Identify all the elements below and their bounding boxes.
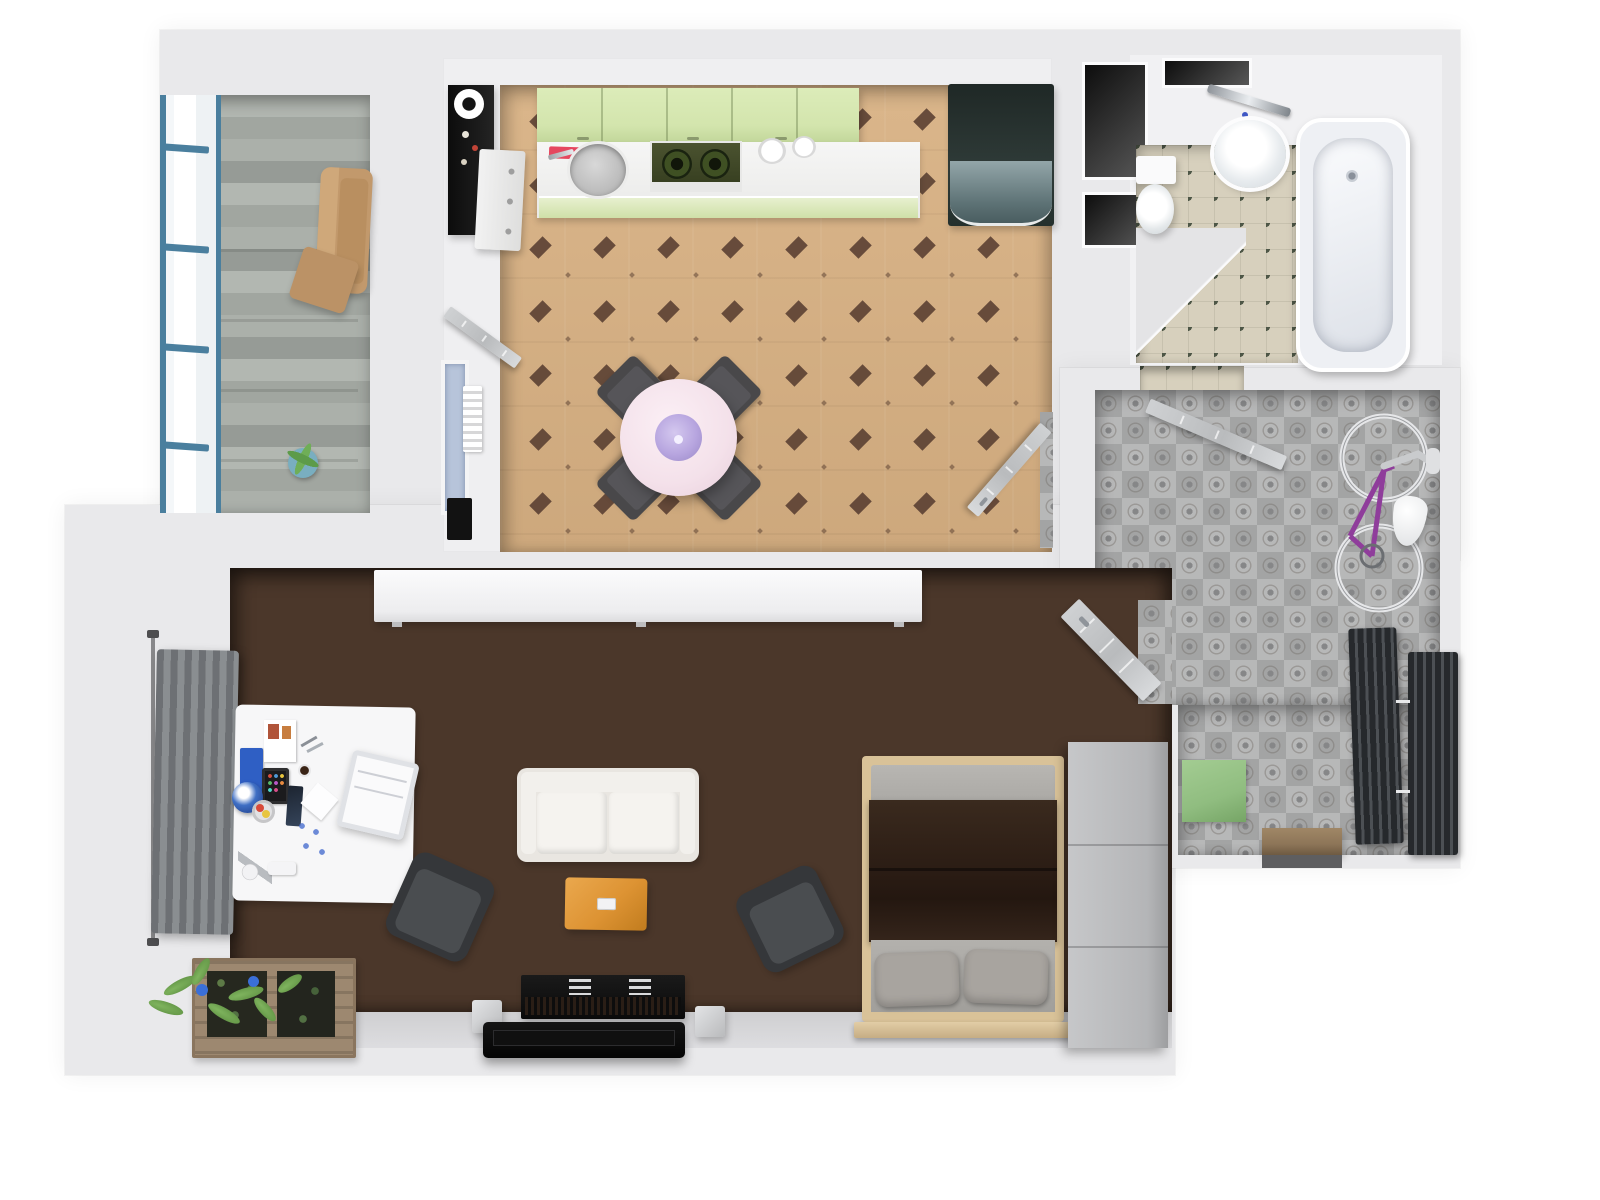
- console-grille-icon: [569, 979, 591, 995]
- coffee-table: [565, 877, 648, 930]
- bed-blanket: [869, 800, 1057, 942]
- toilet-tank: [1136, 156, 1176, 184]
- dining-table: [620, 379, 737, 496]
- bed-pillow: [963, 949, 1049, 1006]
- bed: [862, 756, 1064, 1022]
- kitchen-bin: [447, 498, 472, 540]
- plate: [792, 136, 816, 158]
- stove-burner: [662, 149, 692, 179]
- chair-slat: [354, 785, 403, 798]
- kitchen-drawer-cabinet: [474, 149, 525, 251]
- plant-flower-blue: [196, 984, 208, 996]
- stove-burner: [700, 149, 730, 179]
- floor-plan-canvas: [0, 0, 1600, 1200]
- bicycle-frame: [1350, 466, 1394, 556]
- remote-control: [597, 898, 616, 910]
- bed-blanket-fold: [869, 868, 1057, 871]
- bottle-icon: [462, 131, 469, 138]
- crate-seedlings: [211, 975, 331, 1031]
- pencil-cup-ball-yellow: [262, 810, 270, 818]
- door-handle-icon: [979, 497, 989, 507]
- cabinet-divider: [731, 88, 733, 142]
- wardrobe-seam: [1068, 844, 1168, 846]
- sideboard-foot: [392, 622, 402, 627]
- radiator-pipe: [1396, 700, 1410, 703]
- curtain-rod-finial: [147, 938, 159, 946]
- plant-flower-blue: [248, 976, 259, 987]
- refrigerator-glass-front: [950, 161, 1052, 226]
- cabinet-divider: [666, 88, 668, 142]
- bed-base-platform: [854, 1022, 1072, 1038]
- faucet-dot: [1242, 112, 1248, 118]
- cabinet-handle: [577, 137, 589, 140]
- plate: [758, 138, 786, 164]
- desk-doodles-blue: [296, 820, 330, 860]
- entry-threshold: [1262, 828, 1342, 855]
- sofa-armrest: [680, 772, 695, 854]
- wardrobe-seam: [1068, 946, 1168, 948]
- tv-panel: [483, 1022, 685, 1058]
- bottle-icon: [472, 145, 478, 151]
- kettle-icon: [454, 89, 484, 119]
- bathroom-corner-sink: [1214, 120, 1286, 188]
- cabinet-divider: [601, 88, 603, 142]
- desk-charger: [268, 862, 296, 875]
- kitchen-radiator: [463, 386, 482, 452]
- bed-pillow: [874, 951, 960, 1008]
- sofa-armrest: [521, 772, 536, 854]
- cabinet-handle: [687, 137, 699, 140]
- table-lamp-highlight: [674, 435, 683, 444]
- sofa-cushion: [609, 792, 679, 854]
- green-doormat: [1182, 760, 1246, 822]
- hallway-radiator: [1348, 627, 1404, 845]
- gas-stove: [652, 143, 740, 190]
- stove-front-panel: [652, 182, 740, 190]
- desk-coffee-cup: [298, 764, 311, 777]
- console-grille-icon: [629, 979, 651, 995]
- drawer-knob: [507, 198, 513, 204]
- refrigerator: [948, 84, 1054, 226]
- chair-slat: [358, 770, 407, 783]
- sofa-backrest: [521, 772, 695, 792]
- toilet-bowl: [1136, 184, 1174, 234]
- door-handle-icon: [1078, 616, 1090, 628]
- console-drawer-texture: [525, 997, 681, 1015]
- kitchen-sink: [570, 144, 626, 196]
- bathtub: [1296, 118, 1410, 372]
- drawer-knob: [508, 168, 514, 174]
- bicycle-wall-mount: [1426, 448, 1440, 474]
- sideboard: [374, 570, 922, 622]
- utility-niche: [1162, 58, 1252, 88]
- desk-lamp: [238, 846, 272, 886]
- desk-photo-print: [268, 724, 279, 739]
- radiator-pipe: [1396, 790, 1410, 793]
- gray-curtain: [151, 649, 239, 935]
- drawer-knob: [505, 228, 511, 234]
- bottle-icon: [461, 159, 467, 165]
- speaker-right: [695, 1006, 725, 1037]
- kitchen-lower-cabinets: [539, 196, 918, 218]
- sofa: [517, 768, 699, 862]
- sofa-cushion: [537, 792, 607, 854]
- sideboard-foot: [894, 622, 904, 627]
- curtain-rod-finial: [147, 630, 159, 638]
- wardrobe: [1068, 742, 1168, 1048]
- tablet-app-icons: [267, 773, 284, 799]
- cabinet-divider: [796, 88, 798, 142]
- entry-door-gap: [1262, 855, 1342, 868]
- hallway-radiator: [1408, 652, 1458, 855]
- bathroom-diagonal-wall: [1136, 228, 1246, 363]
- bathtub-drain-icon: [1346, 170, 1358, 182]
- tv-screen-edge: [493, 1030, 675, 1046]
- desk-photo-print: [282, 726, 291, 739]
- sideboard-foot: [636, 622, 646, 627]
- bicycle: [1322, 408, 1447, 623]
- tv-console: [521, 975, 685, 1019]
